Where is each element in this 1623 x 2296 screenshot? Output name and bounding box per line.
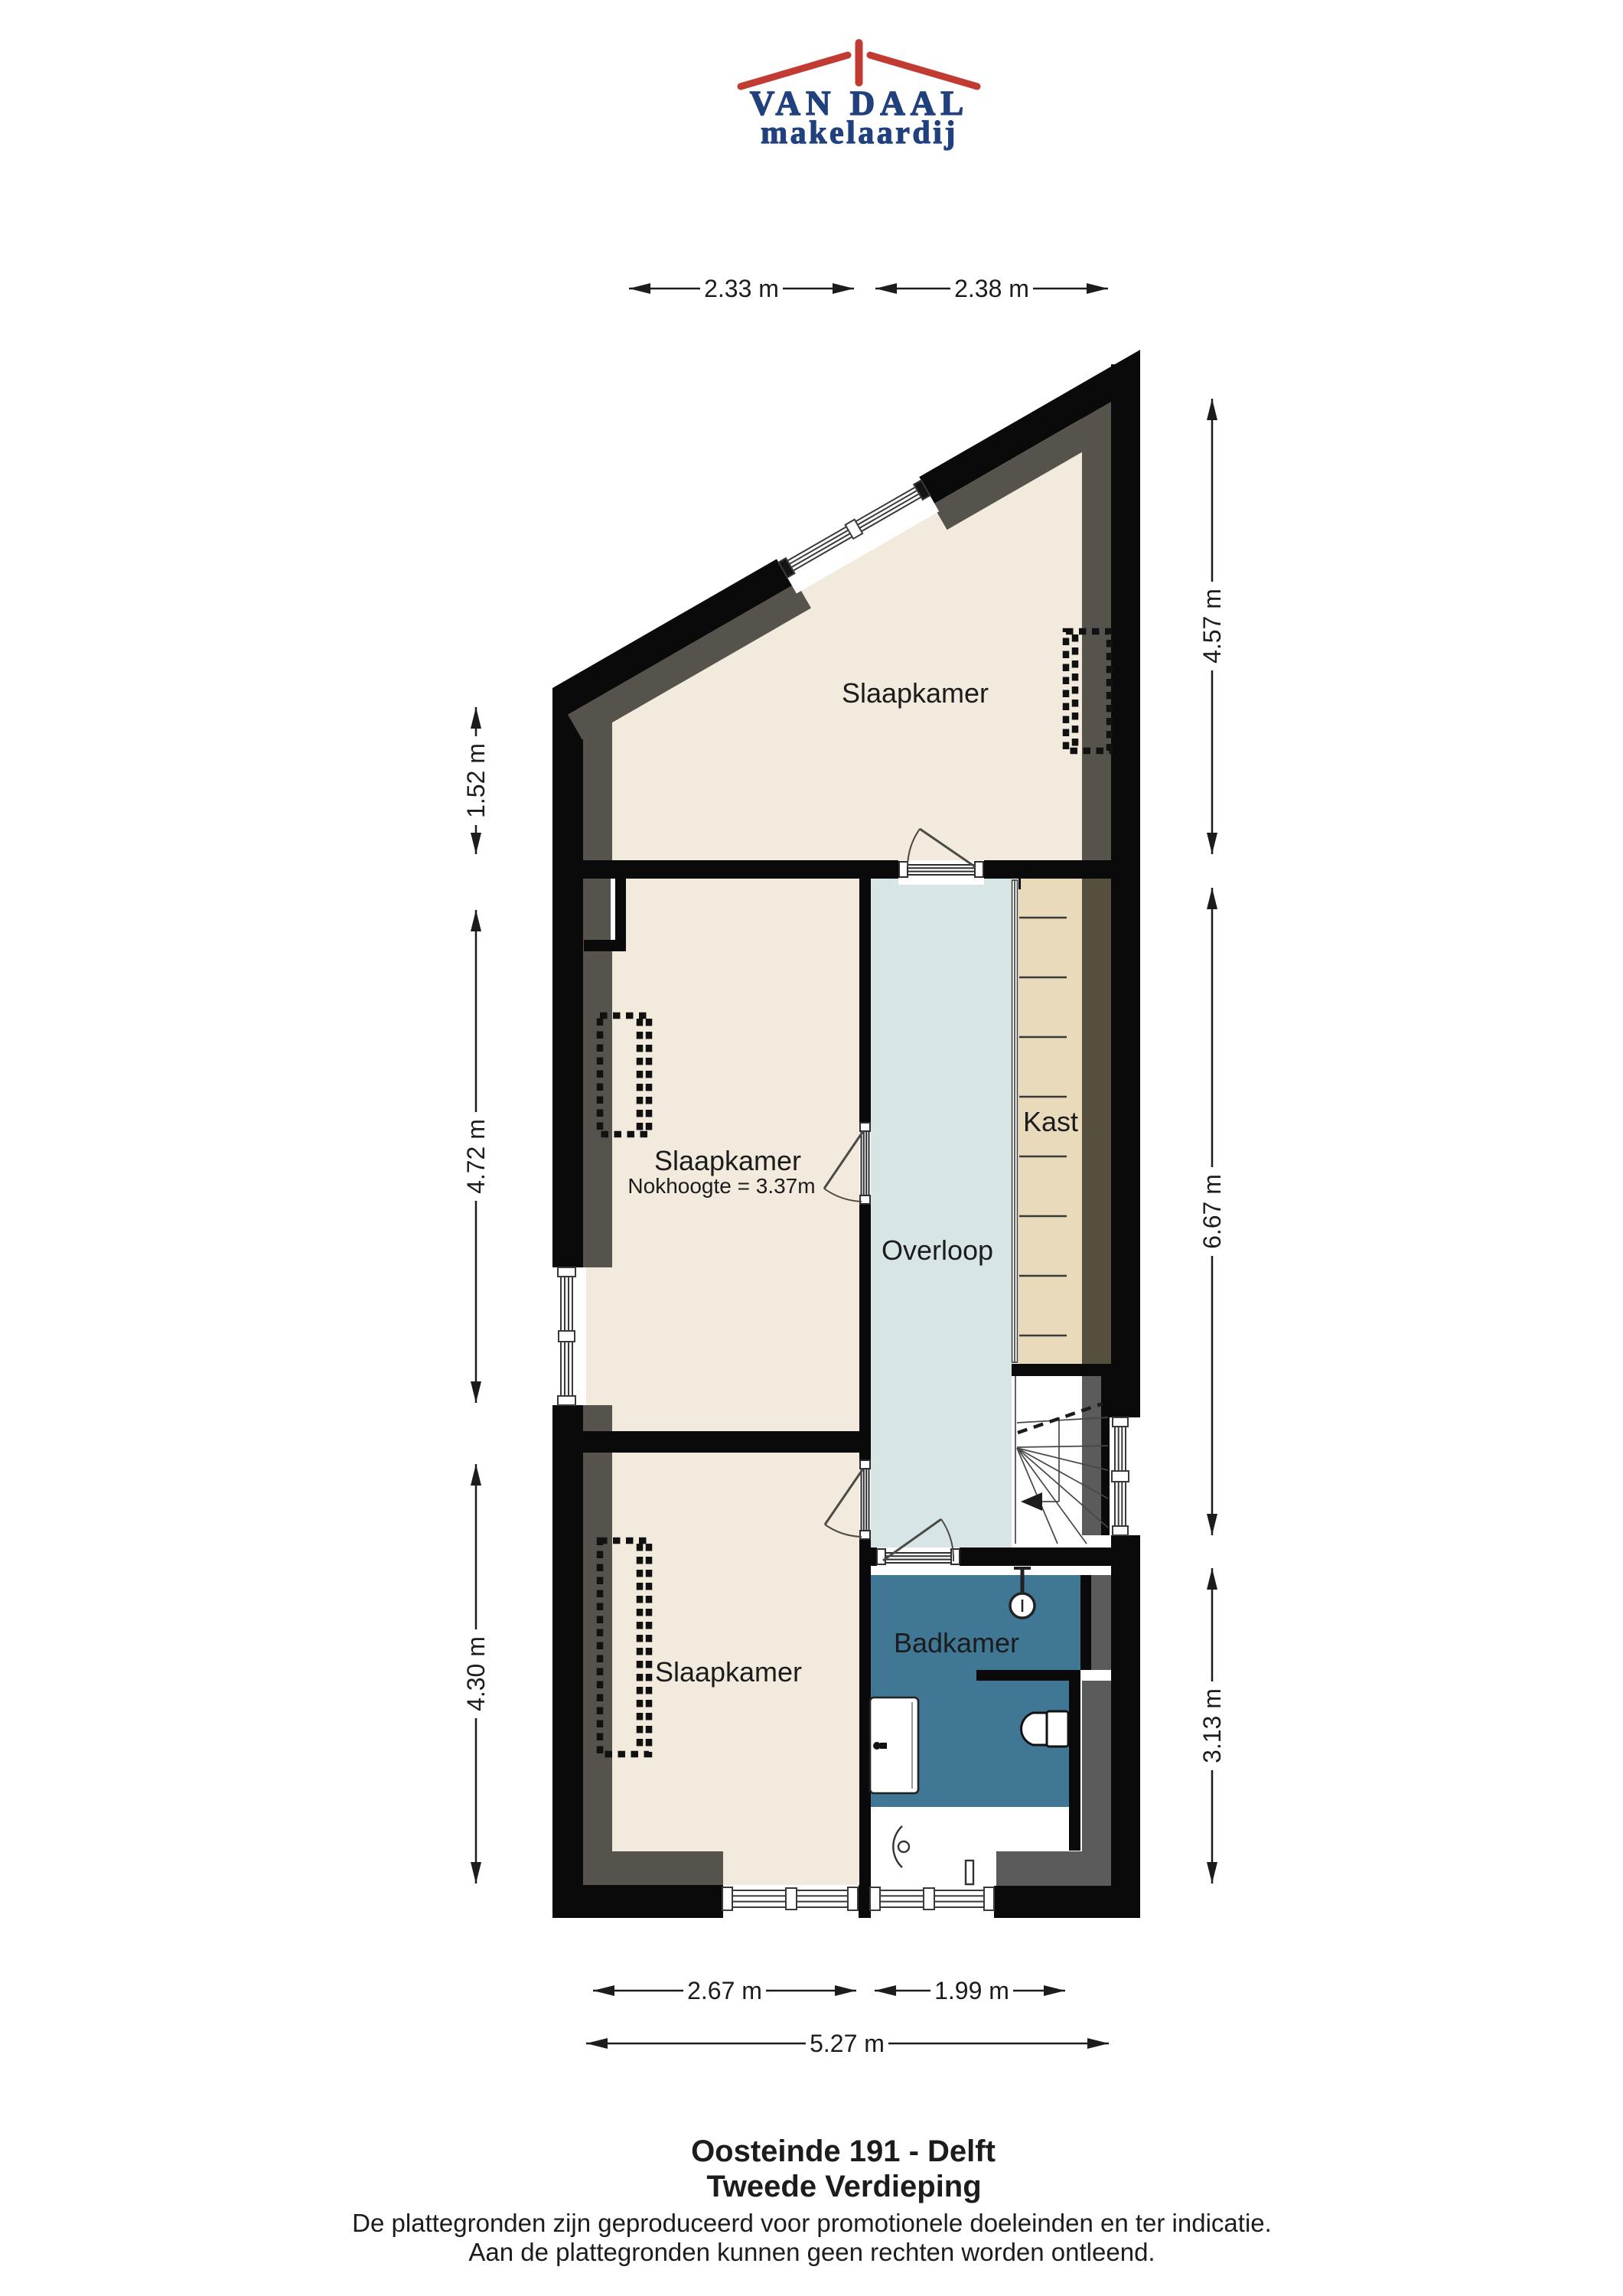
svg-text:3.13 m: 3.13 m: [1198, 1688, 1226, 1763]
svg-text:1.99 m: 1.99 m: [934, 1977, 1009, 2004]
svg-text:Badkamer: Badkamer: [894, 1627, 1019, 1658]
svg-text:1.52 m: 1.52 m: [462, 743, 490, 818]
svg-text:4.57 m: 4.57 m: [1198, 589, 1226, 664]
svg-text:Aan de plattegronden kunnen ge: Aan de plattegronden kunnen geen rechten…: [468, 2238, 1155, 2266]
svg-text:6.67 m: 6.67 m: [1198, 1174, 1226, 1249]
svg-text:Tweede Verdieping: Tweede Verdieping: [706, 2170, 981, 2203]
svg-text:Nokhoogte = 3.37m: Nokhoogte = 3.37m: [627, 1174, 815, 1198]
svg-text:5.27 m: 5.27 m: [810, 2030, 885, 2057]
svg-text:Slaapkamer: Slaapkamer: [655, 1656, 802, 1688]
svg-text:2.38 m: 2.38 m: [954, 275, 1029, 302]
svg-text:Kast: Kast: [1023, 1106, 1078, 1137]
svg-text:Slaapkamer: Slaapkamer: [842, 677, 989, 709]
svg-text:De plattegronden zijn geproduc: De plattegronden zijn geproduceerd voor …: [352, 2209, 1272, 2237]
svg-text:Slaapkamer: Slaapkamer: [654, 1145, 801, 1176]
svg-text:4.72 m: 4.72 m: [462, 1119, 490, 1194]
svg-text:Oosteinde 191 - Delft: Oosteinde 191 - Delft: [691, 2135, 996, 2168]
svg-text:2.67 m: 2.67 m: [687, 1977, 762, 2004]
svg-text:2.33 m: 2.33 m: [704, 275, 779, 302]
svg-text:makelaardij: makelaardij: [761, 116, 958, 151]
svg-text:4.30 m: 4.30 m: [462, 1636, 490, 1711]
svg-text:Overloop: Overloop: [882, 1234, 993, 1266]
